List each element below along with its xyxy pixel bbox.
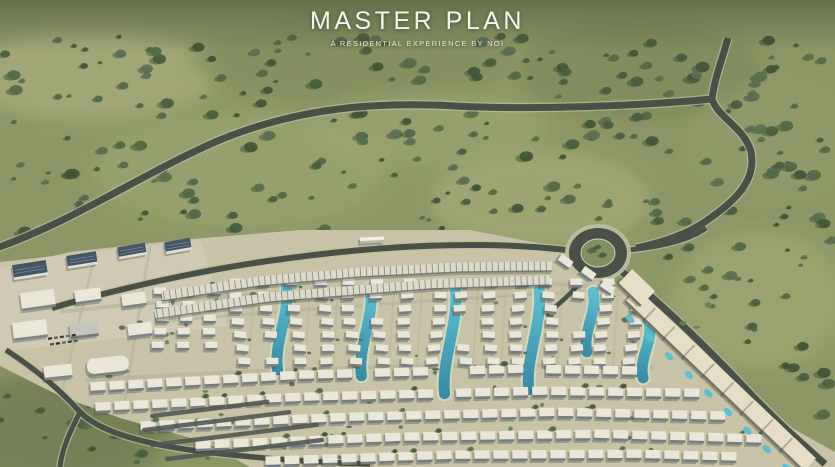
light-overlays bbox=[0, 0, 835, 467]
aerial-scene bbox=[0, 0, 835, 467]
masterplan-render: MASTER PLAN A RESIDENTIAL EXPERIENCE BY … bbox=[0, 0, 835, 467]
